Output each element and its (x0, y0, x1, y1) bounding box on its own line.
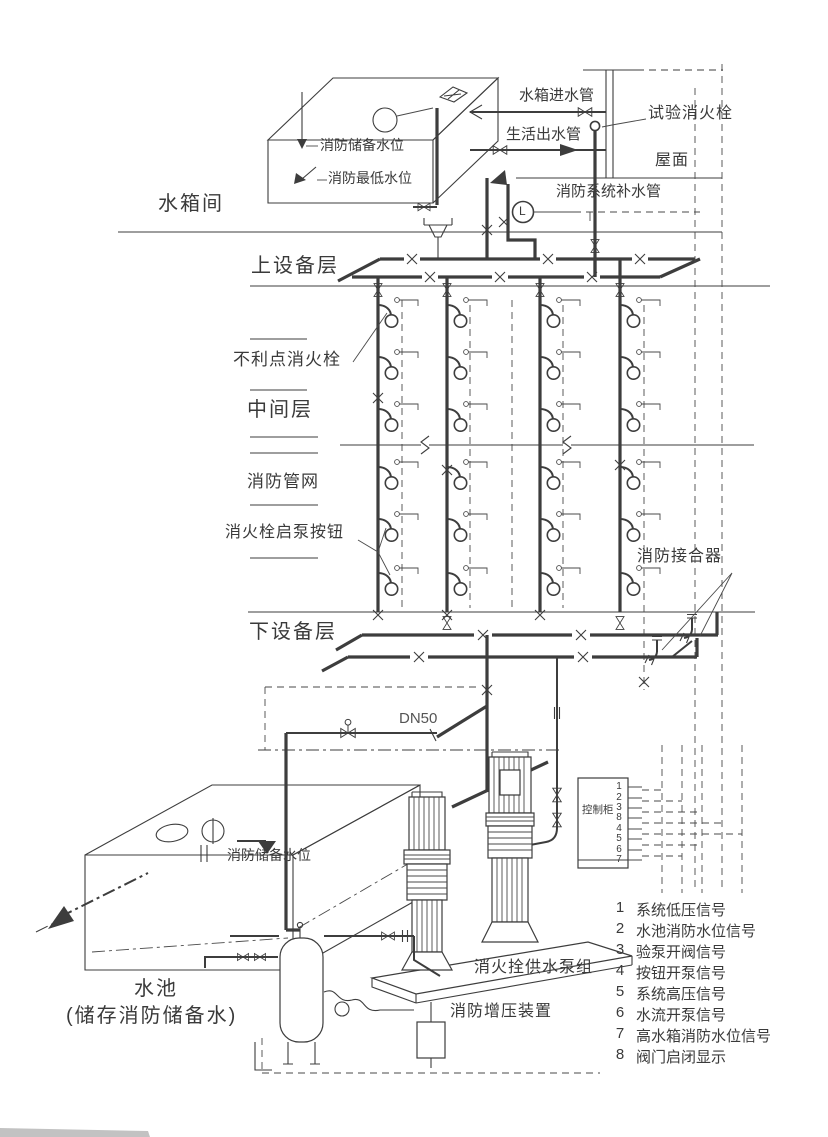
legend-item: 3 验泵开阀信号 (612, 941, 726, 962)
legend-item-num: 7 (612, 1025, 628, 1046)
label-roof: 屋面 (655, 153, 689, 170)
legend-item-num: 1 (612, 899, 628, 920)
label-tank-room: 水箱间 (158, 194, 224, 215)
legend-item: 2 水池消防水位信号 (612, 920, 756, 941)
legend-item-num: 5 (612, 983, 628, 1004)
risers-and-hydrants (353, 259, 660, 620)
legend-item-num: 8 (612, 1046, 628, 1067)
cabinet-terminal: 1 (613, 781, 625, 792)
floor-lines (118, 178, 770, 612)
label-pump-start-button: 消火栓启泵按钮 (225, 525, 344, 542)
legend-item-text: 验泵开阀信号 (636, 941, 726, 962)
label-dn50: DN50 (399, 711, 437, 727)
label-domestic-outlet-pipe: 生活出水管 (506, 127, 581, 143)
label-pool-reserve-level: 消防储备水位 (227, 848, 311, 863)
label-pressurization-unit: 消防增压装置 (450, 1004, 552, 1021)
legend-item-num: 6 (612, 1004, 628, 1025)
label-fire-dept-connection: 消防接合器 (637, 549, 722, 566)
label-test-hydrant: 试验消火栓 (648, 106, 733, 123)
control-cabinet-box (578, 778, 642, 868)
legend-item-text: 按钮开泵信号 (636, 962, 726, 983)
legend-item: 1 系统低压信号 (612, 899, 726, 920)
label-level-gauge: L (519, 205, 526, 218)
label-middle-floor: 中间层 (247, 400, 313, 421)
lower-headers (322, 573, 732, 671)
label-control-cabinet: 控制柜 (582, 805, 616, 816)
label-lower-equipment-floor: 下设备层 (249, 622, 337, 643)
label-upper-equipment-floor: 上设备层 (251, 256, 339, 277)
label-system-makeup-pipe: 消防系统补水管 (556, 184, 661, 200)
label-unfavorable-hydrant: 不利点消火栓 (233, 351, 341, 369)
label-hydrant-pump-group: 消火拴供水泵组 (474, 960, 593, 977)
legend-item: 8 阀门启闭显示 (612, 1046, 726, 1067)
upper-distribution-headers (338, 254, 700, 296)
legend-item: 7 高水箱消防水位信号 (612, 1025, 771, 1046)
label-pool-note: (储存消防储备水) (66, 1006, 237, 1027)
legend-item-text: 系统高压信号 (636, 983, 726, 1004)
legend-item: 4 按钮开泵信号 (612, 962, 726, 983)
legend-item-text: 水流开泵信号 (636, 1004, 726, 1025)
legend-item-num: 3 (612, 941, 628, 962)
legend-item: 6 水流开泵信号 (612, 1004, 726, 1025)
label-tank-reserve-level: 消防储备水位 (320, 138, 404, 153)
label-tank-inlet-pipe: 水箱进水管 (519, 88, 594, 104)
tank-piping (470, 70, 723, 277)
legend-item-text: 高水箱消防水位信号 (636, 1025, 771, 1046)
cabinet-terminal: 5 (613, 833, 625, 844)
legend-item-num: 2 (612, 920, 628, 941)
legend-item-text: 水池消防水位信号 (636, 920, 756, 941)
label-tank-lowest-level: 消防最低水位 (328, 171, 412, 186)
fire-pool (36, 785, 420, 970)
cabinet-terminal: 8 (613, 812, 625, 823)
legend-item-num: 4 (612, 962, 628, 983)
label-fire-pipe-network: 消防管网 (247, 473, 319, 491)
upper-water-tank (268, 78, 498, 258)
legend-item-text: 系统低压信号 (636, 899, 726, 920)
scan-smudge (0, 1128, 150, 1137)
pressurization-unit (230, 922, 600, 1073)
cabinet-terminal: 7 (613, 854, 625, 865)
legend-item: 5 系统高压信号 (612, 983, 726, 1004)
legend-item-text: 阀门启闭显示 (636, 1046, 726, 1067)
label-pool: 水池 (134, 979, 178, 1000)
fire-hydrant-system-diagram: 水箱进水管 生活出水管 试验消火栓 屋面 消防储备水位 消防最低水位 水箱间 消… (0, 0, 828, 1137)
